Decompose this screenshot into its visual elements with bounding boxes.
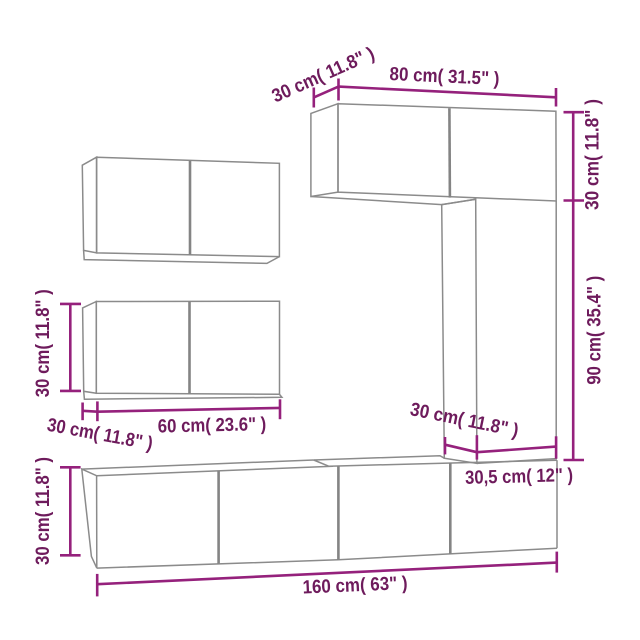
svg-text:30 cm( 11.8" ): 30 cm( 11.8" ) bbox=[33, 289, 54, 397]
svg-text:90 cm( 35.4" ): 90 cm( 35.4" ) bbox=[585, 276, 606, 385]
svg-text:30,5 cm( 12" ): 30,5 cm( 12" ) bbox=[465, 465, 574, 489]
svg-text:30 cm( 11.8" ): 30 cm( 11.8" ) bbox=[33, 457, 54, 565]
svg-text:60 cm( 23.6" ): 60 cm( 23.6" ) bbox=[158, 414, 267, 437]
svg-text:30 cm( 11.8" ): 30 cm( 11.8" ) bbox=[583, 99, 604, 210]
svg-text:160 cm( 63" ): 160 cm( 63" ) bbox=[302, 573, 408, 598]
